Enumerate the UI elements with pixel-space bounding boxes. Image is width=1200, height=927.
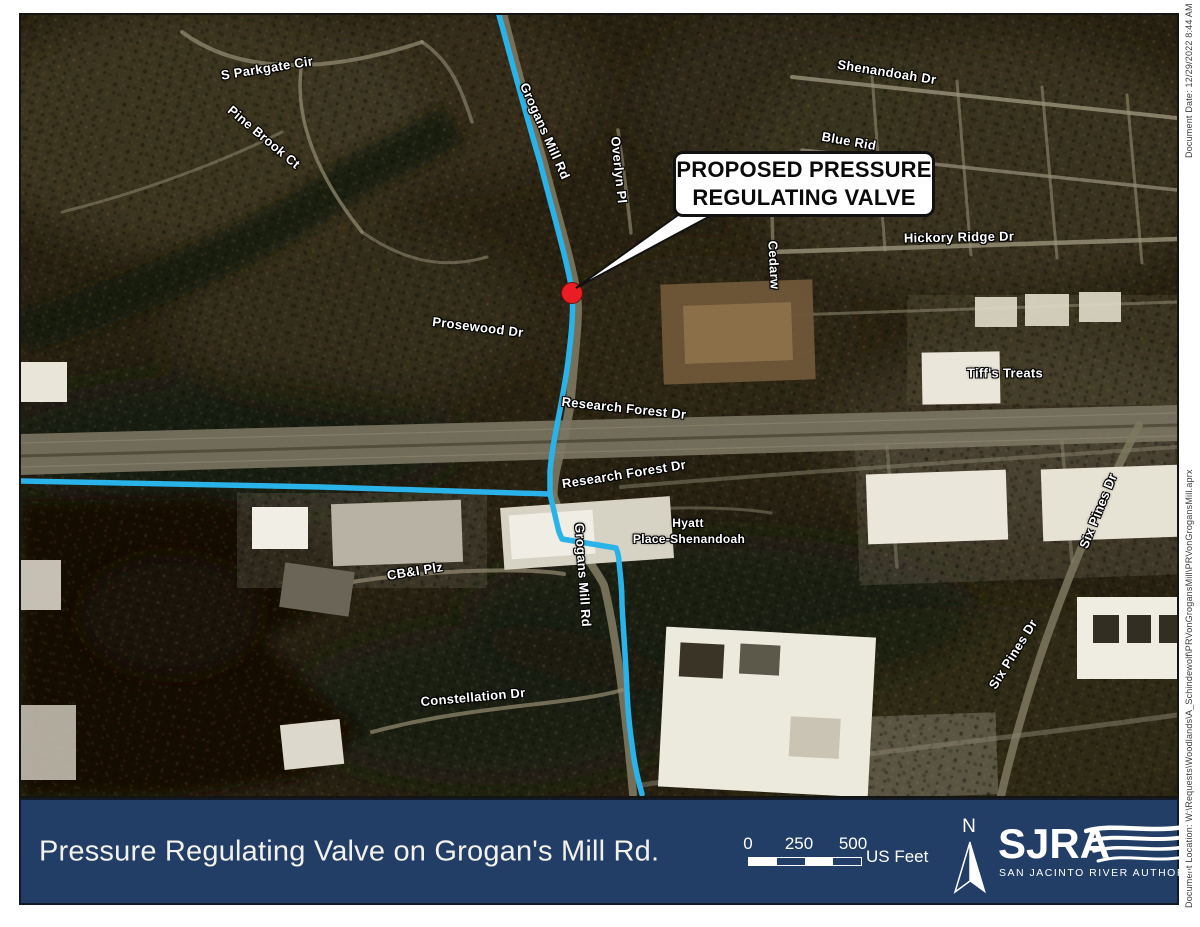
footer-bar: Pressure Regulating Valve on Grogan's Mi… xyxy=(19,798,1179,905)
callout-text-line2: REGULATING VALVE xyxy=(692,184,915,212)
scale-bar xyxy=(748,857,862,866)
poi-label-tiffs-treats: Tiff's Treats xyxy=(967,366,1043,381)
street-label-hickory-ridge-dr: Hickory Ridge Dr xyxy=(904,229,1015,246)
map-title: Pressure Regulating Valve on Grogan's Mi… xyxy=(39,835,659,868)
map-document-page: S Parkgate Cir Pine Brook Ct Grogans Mil… xyxy=(0,0,1200,927)
callout-text-line1: PROPOSED PRESSURE xyxy=(676,156,931,184)
document-date-text: Document Date: 12/29/2022 8:44 AM xyxy=(1184,24,1194,158)
scale-unit-label: US Feet xyxy=(866,847,928,867)
scale-tick-250: 250 xyxy=(785,834,813,854)
poi-label-hyatt-place-shenandoah: Place-Shenandoah xyxy=(633,532,745,546)
north-label: N xyxy=(962,816,976,838)
scale-tick-0: 0 xyxy=(743,834,752,854)
sjra-logo-name: SAN JACINTO RIVER AUTHORITY xyxy=(999,867,1200,879)
north-arrow-icon xyxy=(950,840,990,896)
poi-label-hyatt: Hyatt xyxy=(672,516,704,530)
street-label-cedarw: Cedarw xyxy=(765,240,783,289)
sjra-logo-waves-icon xyxy=(1084,824,1186,870)
map-canvas: S Parkgate Cir Pine Brook Ct Grogans Mil… xyxy=(19,13,1179,798)
callout-proposed-valve: PROPOSED PRESSURE REGULATING VALVE xyxy=(673,151,935,217)
scale-tick-500: 500 xyxy=(839,834,867,854)
